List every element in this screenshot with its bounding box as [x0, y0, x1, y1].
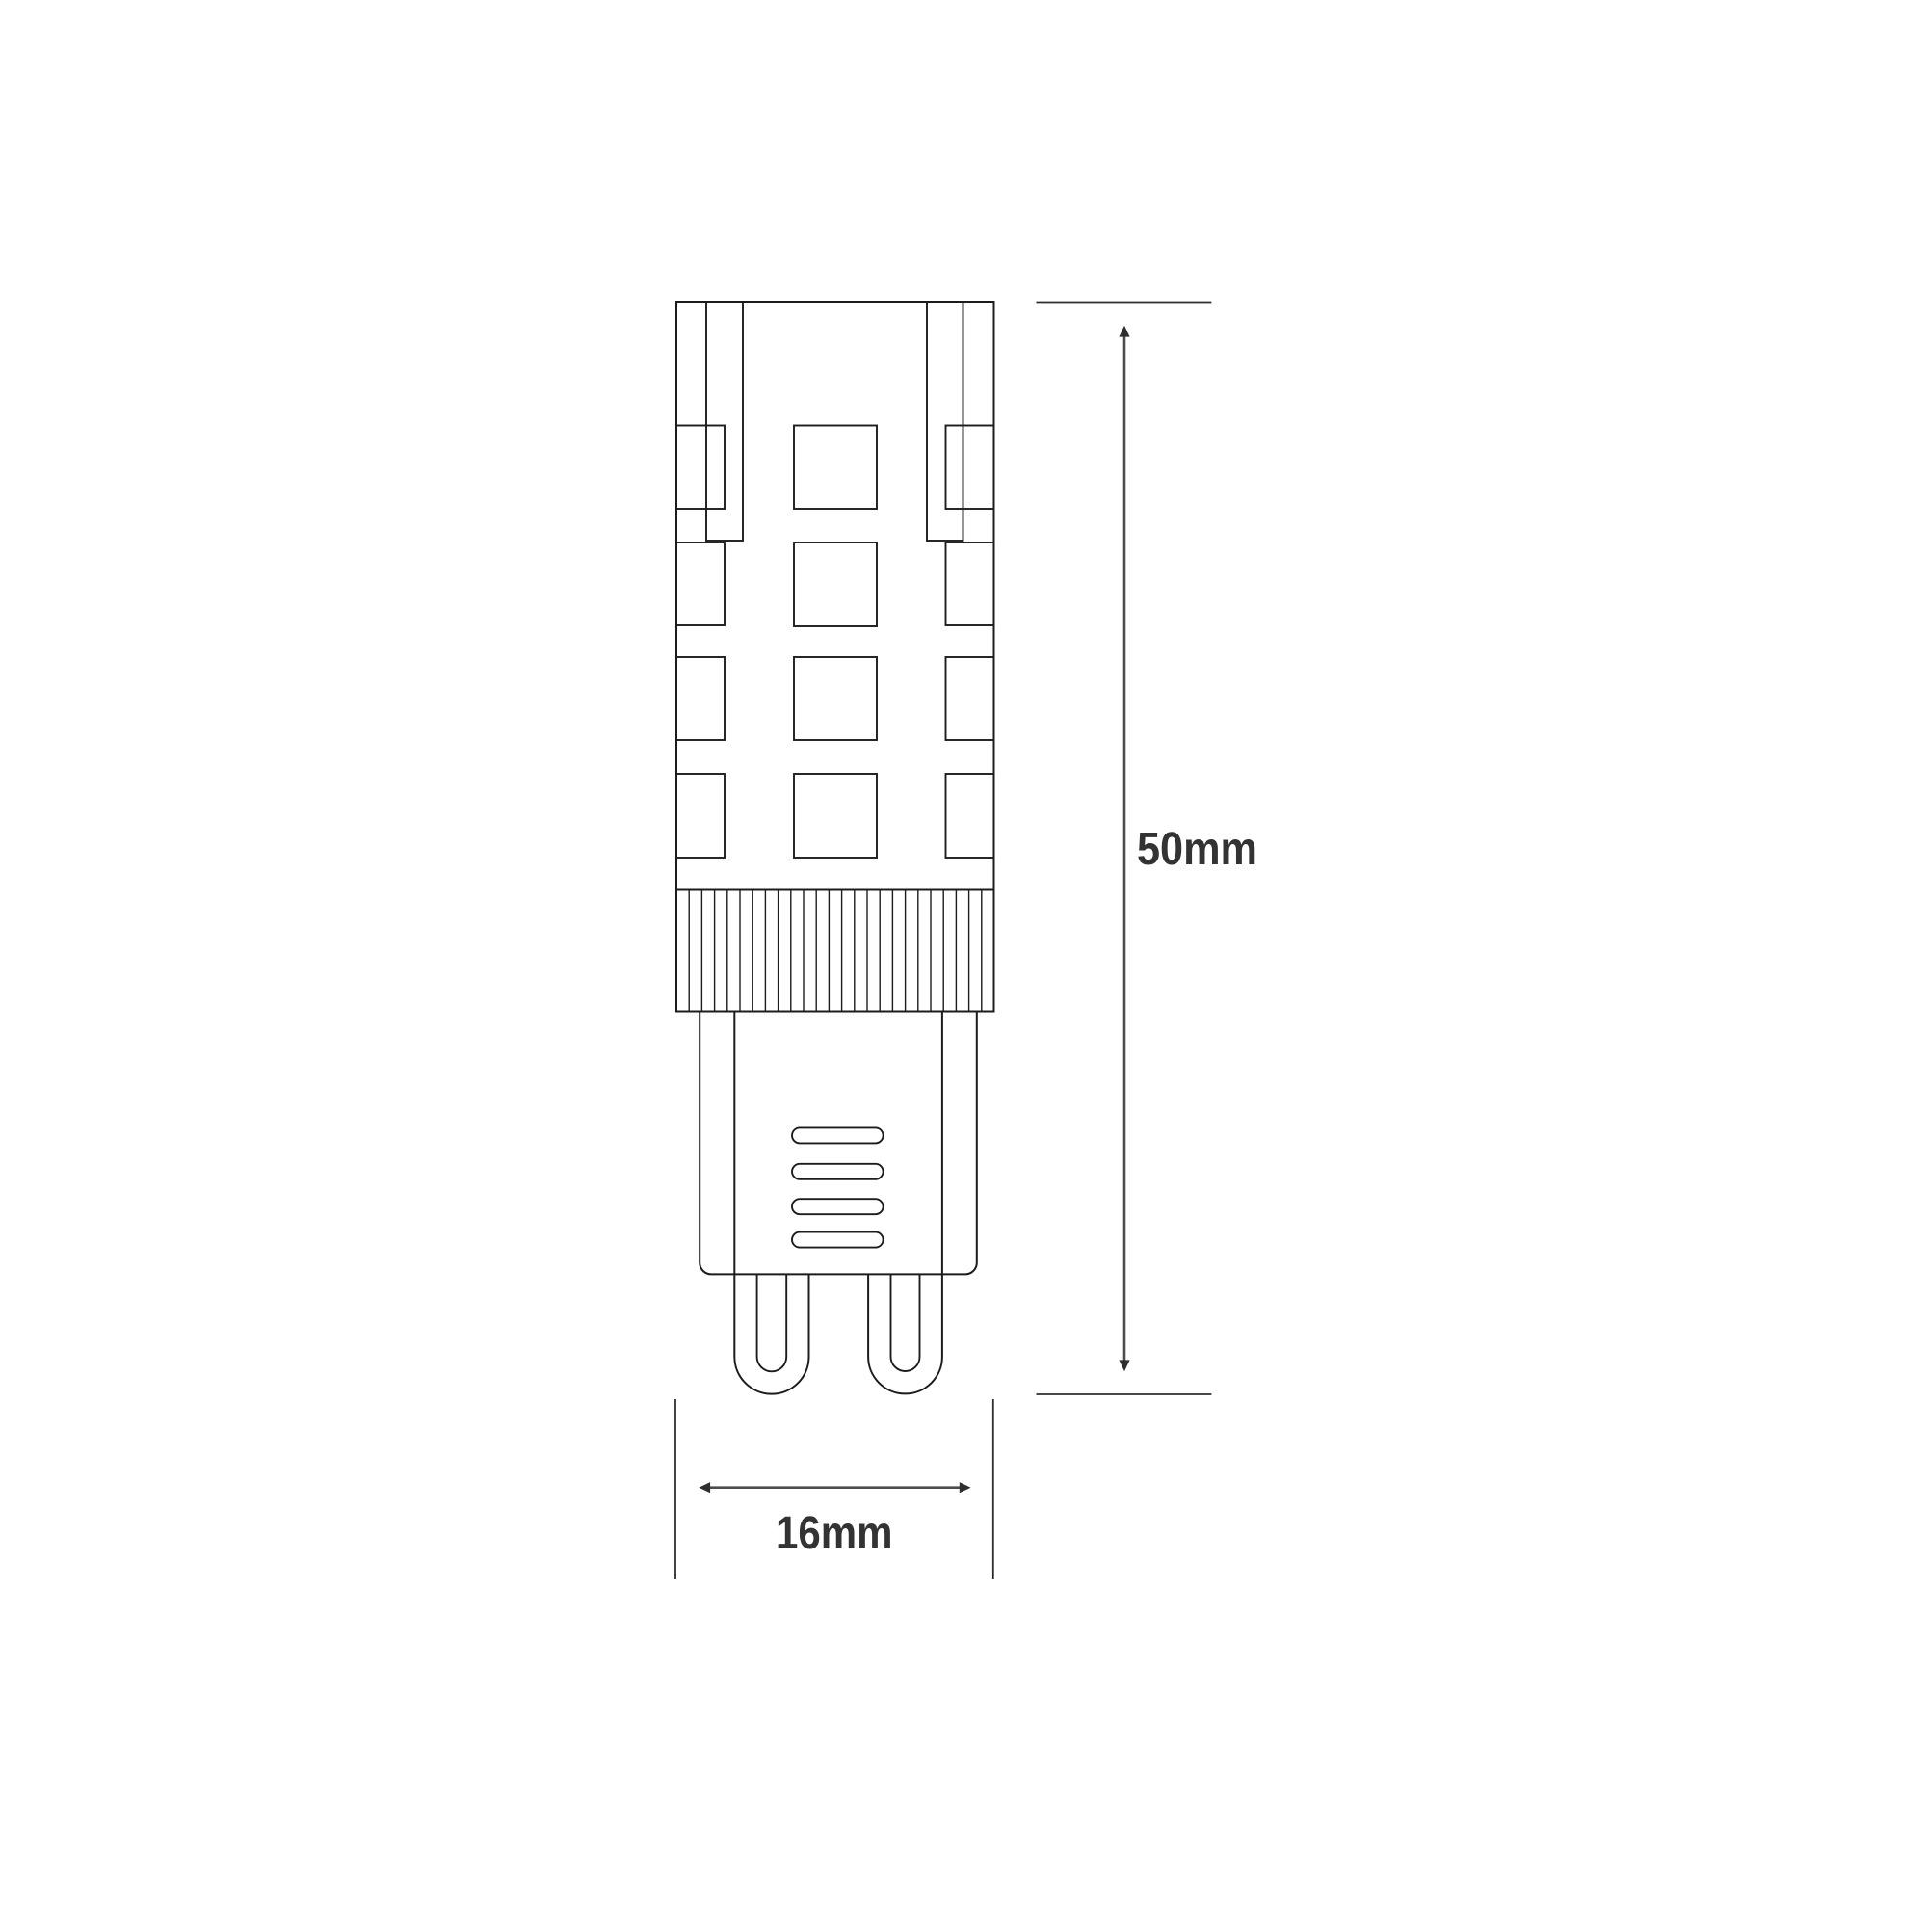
svg-text:50mm: 50mm	[1137, 824, 1257, 875]
svg-text:16mm: 16mm	[776, 1508, 893, 1559]
